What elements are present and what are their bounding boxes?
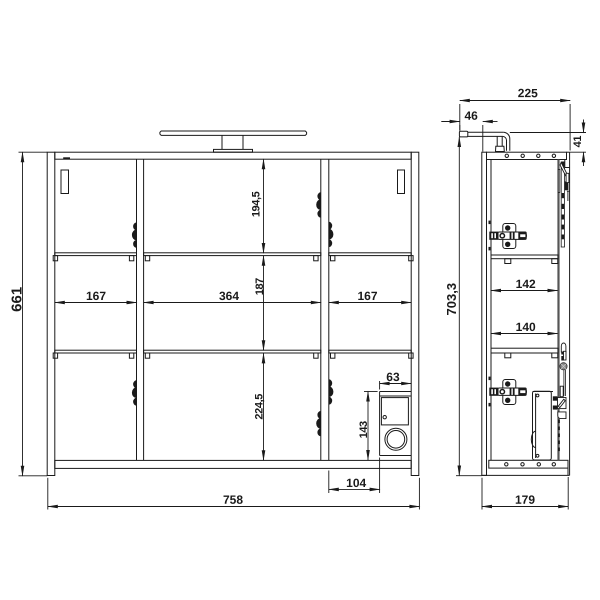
svg-text:194,5: 194,5 xyxy=(251,191,263,217)
svg-text:41: 41 xyxy=(572,136,584,148)
svg-text:703,3: 703,3 xyxy=(444,283,459,316)
svg-text:364: 364 xyxy=(219,289,239,303)
svg-text:225: 225 xyxy=(518,86,538,100)
svg-text:179: 179 xyxy=(515,493,535,507)
svg-text:46: 46 xyxy=(465,109,479,123)
svg-text:142: 142 xyxy=(516,277,536,291)
svg-text:63: 63 xyxy=(386,370,400,384)
svg-text:104: 104 xyxy=(346,476,366,490)
svg-text:140: 140 xyxy=(516,320,536,334)
svg-text:167: 167 xyxy=(86,289,106,303)
svg-text:758: 758 xyxy=(223,493,243,507)
svg-text:224,5: 224,5 xyxy=(254,394,266,420)
svg-text:167: 167 xyxy=(357,289,377,303)
svg-text:187: 187 xyxy=(254,278,266,295)
svg-text:661: 661 xyxy=(9,287,26,312)
svg-text:143: 143 xyxy=(358,421,370,438)
